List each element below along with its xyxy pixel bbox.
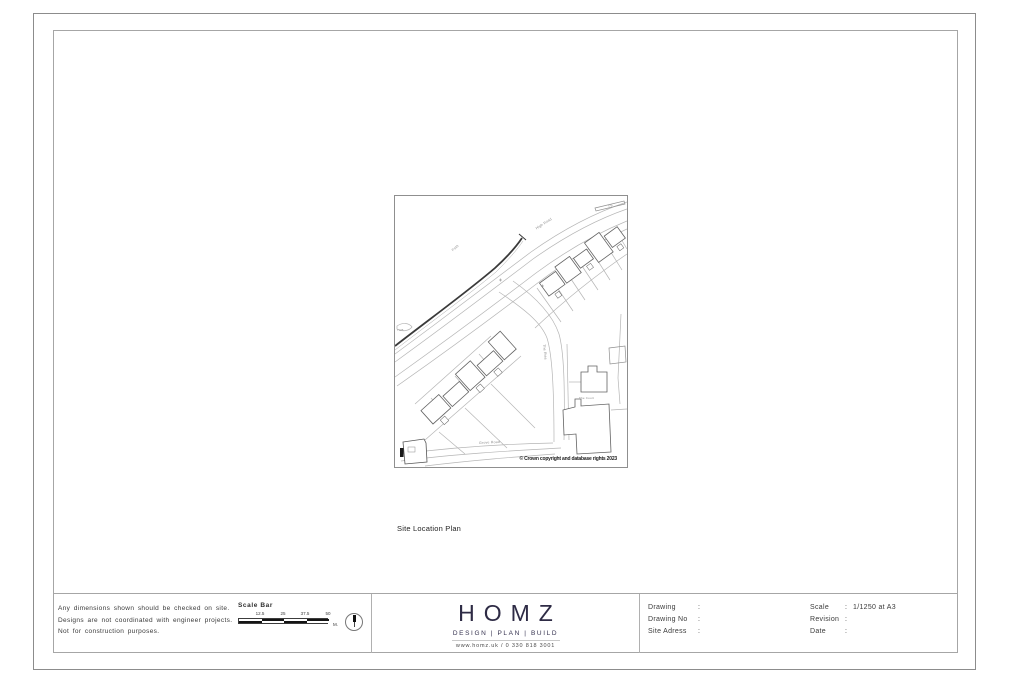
logo-cell: HOMZ DESIGN | PLAN | BUILD www.homz.uk /… (372, 594, 640, 653)
field-label: Revision (810, 615, 845, 627)
north-arrow-icon (345, 613, 363, 631)
logo-divider (452, 640, 560, 641)
scale-bar-unit: M. (333, 622, 338, 627)
drawing-info-left-column: Drawing : Drawing No : Site Adress : (648, 603, 706, 639)
info-row-drawing-no: Drawing No : (648, 615, 706, 627)
notes-cell: Any dimensions shown should be checked o… (53, 594, 372, 653)
scale-tick: 50 (317, 611, 339, 616)
field-separator: : (845, 603, 853, 615)
scale-tick: 25 (272, 611, 294, 616)
field-label: Drawing No (648, 615, 698, 627)
field-label: Site Adress (648, 627, 698, 639)
scale-bar-ticks: 12.5 25 37.5 50 (238, 611, 328, 618)
field-value: 1/1250 at A3 (853, 603, 896, 615)
field-separator: : (698, 603, 706, 615)
title-block: Any dimensions shown should be checked o… (53, 593, 957, 653)
site-map-svg (395, 196, 627, 467)
map-copyright-text: © Crown copyright and database rights 20… (495, 456, 617, 462)
note-line: Designs are not coordinated with enginee… (58, 615, 233, 627)
field-separator: : (698, 627, 706, 639)
field-label: Scale (810, 603, 845, 615)
field-separator: : (845, 615, 853, 627)
info-row-revision: Revision : (810, 615, 896, 627)
info-row-site-address: Site Adress : (648, 627, 706, 639)
field-label: Date (810, 627, 845, 639)
note-line: Not for construction purposes. (58, 626, 233, 638)
company-logo: HOMZ DESIGN | PLAN | BUILD www.homz.uk /… (372, 600, 639, 649)
scale-tick: 12.5 (249, 611, 271, 616)
scale-bar-title: Scale Bar (238, 602, 338, 609)
scale-tick: 37.5 (294, 611, 316, 616)
map-tcb-label: TCB (397, 328, 404, 332)
note-line: Any dimensions shown should be checked o… (58, 603, 233, 615)
logo-contact: www.homz.uk / 0 330 818 3001 (372, 643, 639, 649)
disclaimer-notes: Any dimensions shown should be checked o… (58, 603, 233, 638)
logo-name: HOMZ (372, 600, 639, 627)
field-separator: : (698, 615, 706, 627)
field-separator: : (845, 627, 853, 639)
figure-caption: Site Location Plan (397, 524, 461, 533)
logo-tagline: DESIGN | PLAN | BUILD (372, 630, 639, 637)
map-buildings (403, 222, 627, 464)
site-location-map: High Road Path The Rise Grove Road The C… (394, 195, 628, 468)
info-row-drawing: Drawing : (648, 603, 706, 615)
scale-bar: Scale Bar 12.5 25 37.5 50 M. (238, 602, 338, 624)
drawing-info-cell: Drawing : Drawing No : Site Adress : Sca… (640, 594, 957, 653)
scale-bar-graphic (238, 618, 328, 624)
map-court-label: The Court (579, 396, 594, 400)
info-row-scale: Scale : 1/1250 at A3 (810, 603, 896, 615)
field-label: Drawing (648, 603, 698, 615)
drawing-info-right-column: Scale : 1/1250 at A3 Revision : Date : (810, 603, 896, 639)
info-row-date: Date : (810, 627, 896, 639)
